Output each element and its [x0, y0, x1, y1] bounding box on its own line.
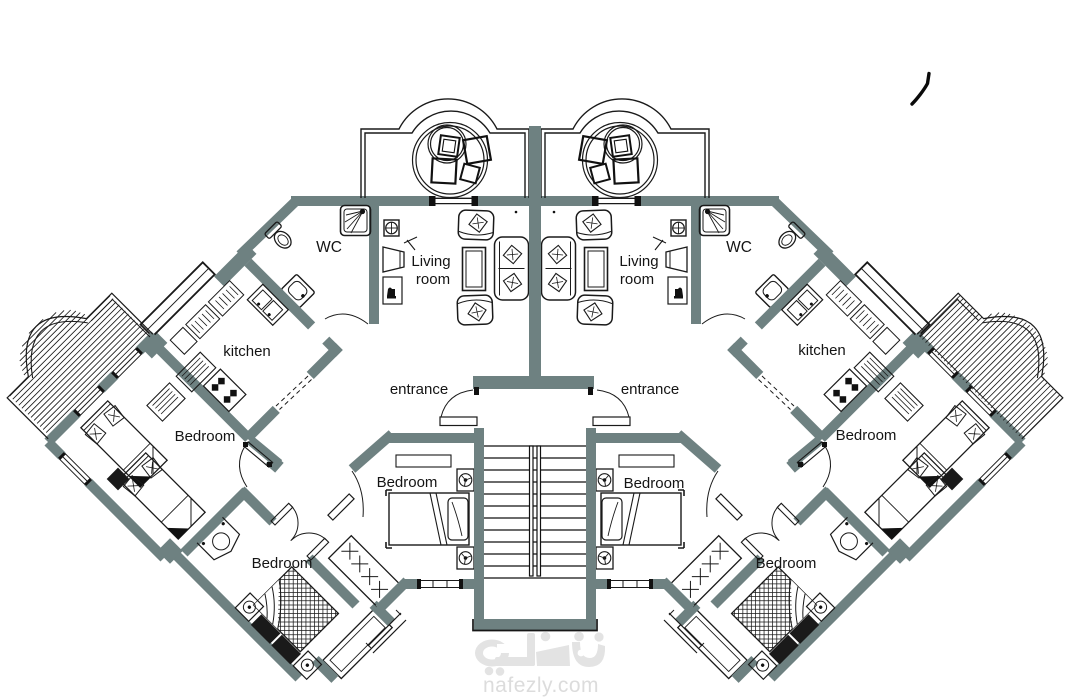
- svg-text:Bedroom: Bedroom: [756, 555, 817, 572]
- svg-text:nafezly.com: nafezly.com: [483, 674, 599, 697]
- svg-text:room: room: [620, 271, 654, 288]
- svg-text:Bedroom: Bedroom: [836, 427, 897, 444]
- svg-text:Living: Living: [619, 253, 658, 270]
- svg-text:entrance: entrance: [621, 381, 679, 398]
- svg-text:WC: WC: [316, 239, 342, 256]
- svg-text:WC: WC: [726, 239, 752, 256]
- svg-text:kitchen: kitchen: [798, 342, 846, 359]
- svg-text:kitchen: kitchen: [223, 343, 271, 360]
- svg-text:Living: Living: [411, 253, 450, 270]
- svg-text:Bedroom: Bedroom: [175, 428, 236, 445]
- svg-text:room: room: [416, 271, 450, 288]
- svg-text:Bedroom: Bedroom: [377, 474, 438, 491]
- svg-text:Bedroom: Bedroom: [252, 555, 313, 572]
- svg-text:Bedroom: Bedroom: [624, 475, 685, 492]
- svg-text:entrance: entrance: [390, 381, 448, 398]
